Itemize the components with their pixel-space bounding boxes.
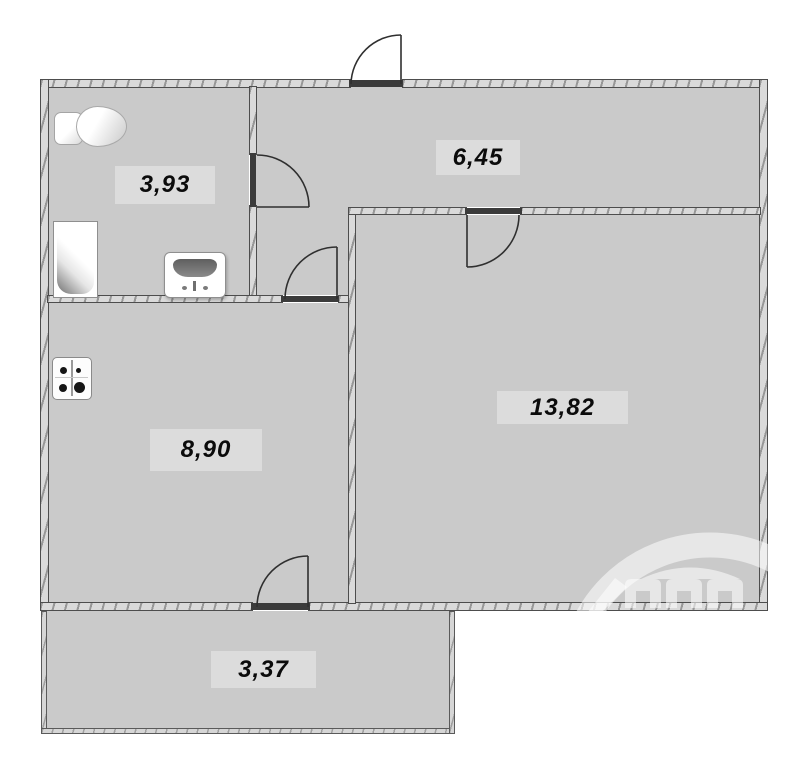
entrance-door-threshold: [349, 80, 403, 87]
wall-bottom-right: [308, 602, 768, 611]
area-label-kitchen: 8,90: [150, 429, 262, 471]
living-door-threshold: [465, 208, 522, 214]
area-value-hallway: 6,45: [453, 144, 504, 172]
wall-bathroom-right-lower: [249, 205, 257, 297]
stove-burner: [74, 382, 85, 393]
stove-burner: [59, 384, 67, 392]
stove-burner: [76, 368, 81, 373]
area-label-living: 13,82: [497, 391, 628, 424]
wall-top-left: [40, 79, 351, 88]
floor-plan-canvas: 3,93 6,45 8,90 13,82 3,37: [0, 0, 812, 768]
stove-icon: [52, 357, 92, 400]
area-value-balcony: 3,37: [238, 656, 289, 684]
bathroom-door-threshold: [250, 153, 256, 207]
balcony-wall-left: [41, 611, 47, 734]
toilet-icon: [54, 106, 126, 146]
area-label-balcony: 3,37: [211, 651, 316, 688]
wall-bathroom-right-upper: [249, 86, 257, 155]
wall-bottom-left: [40, 602, 253, 611]
wall-right: [759, 79, 768, 611]
wall-top-right: [402, 79, 768, 88]
area-label-bathroom: 3,93: [115, 166, 215, 204]
wall-left: [40, 79, 49, 611]
area-label-hallway: 6,45: [436, 140, 520, 175]
area-value-living: 13,82: [530, 394, 595, 422]
wall-living-top-right: [520, 207, 761, 215]
wall-living-top-left: [348, 207, 467, 215]
entrance-door-arc: [351, 35, 401, 84]
area-value-kitchen: 8,90: [181, 436, 232, 464]
area-value-bathroom: 3,93: [140, 171, 191, 199]
sink-icon: [164, 252, 226, 298]
room-hallway-corridor-floor: [255, 207, 348, 295]
kitchen-door-threshold: [281, 296, 339, 302]
balcony-door-threshold: [251, 603, 310, 610]
balcony-wall-bottom: [41, 728, 455, 734]
wall-living-left: [348, 207, 356, 604]
stove-burner: [60, 367, 67, 374]
bathtub-icon: [53, 221, 98, 298]
balcony-wall-right: [449, 611, 455, 734]
